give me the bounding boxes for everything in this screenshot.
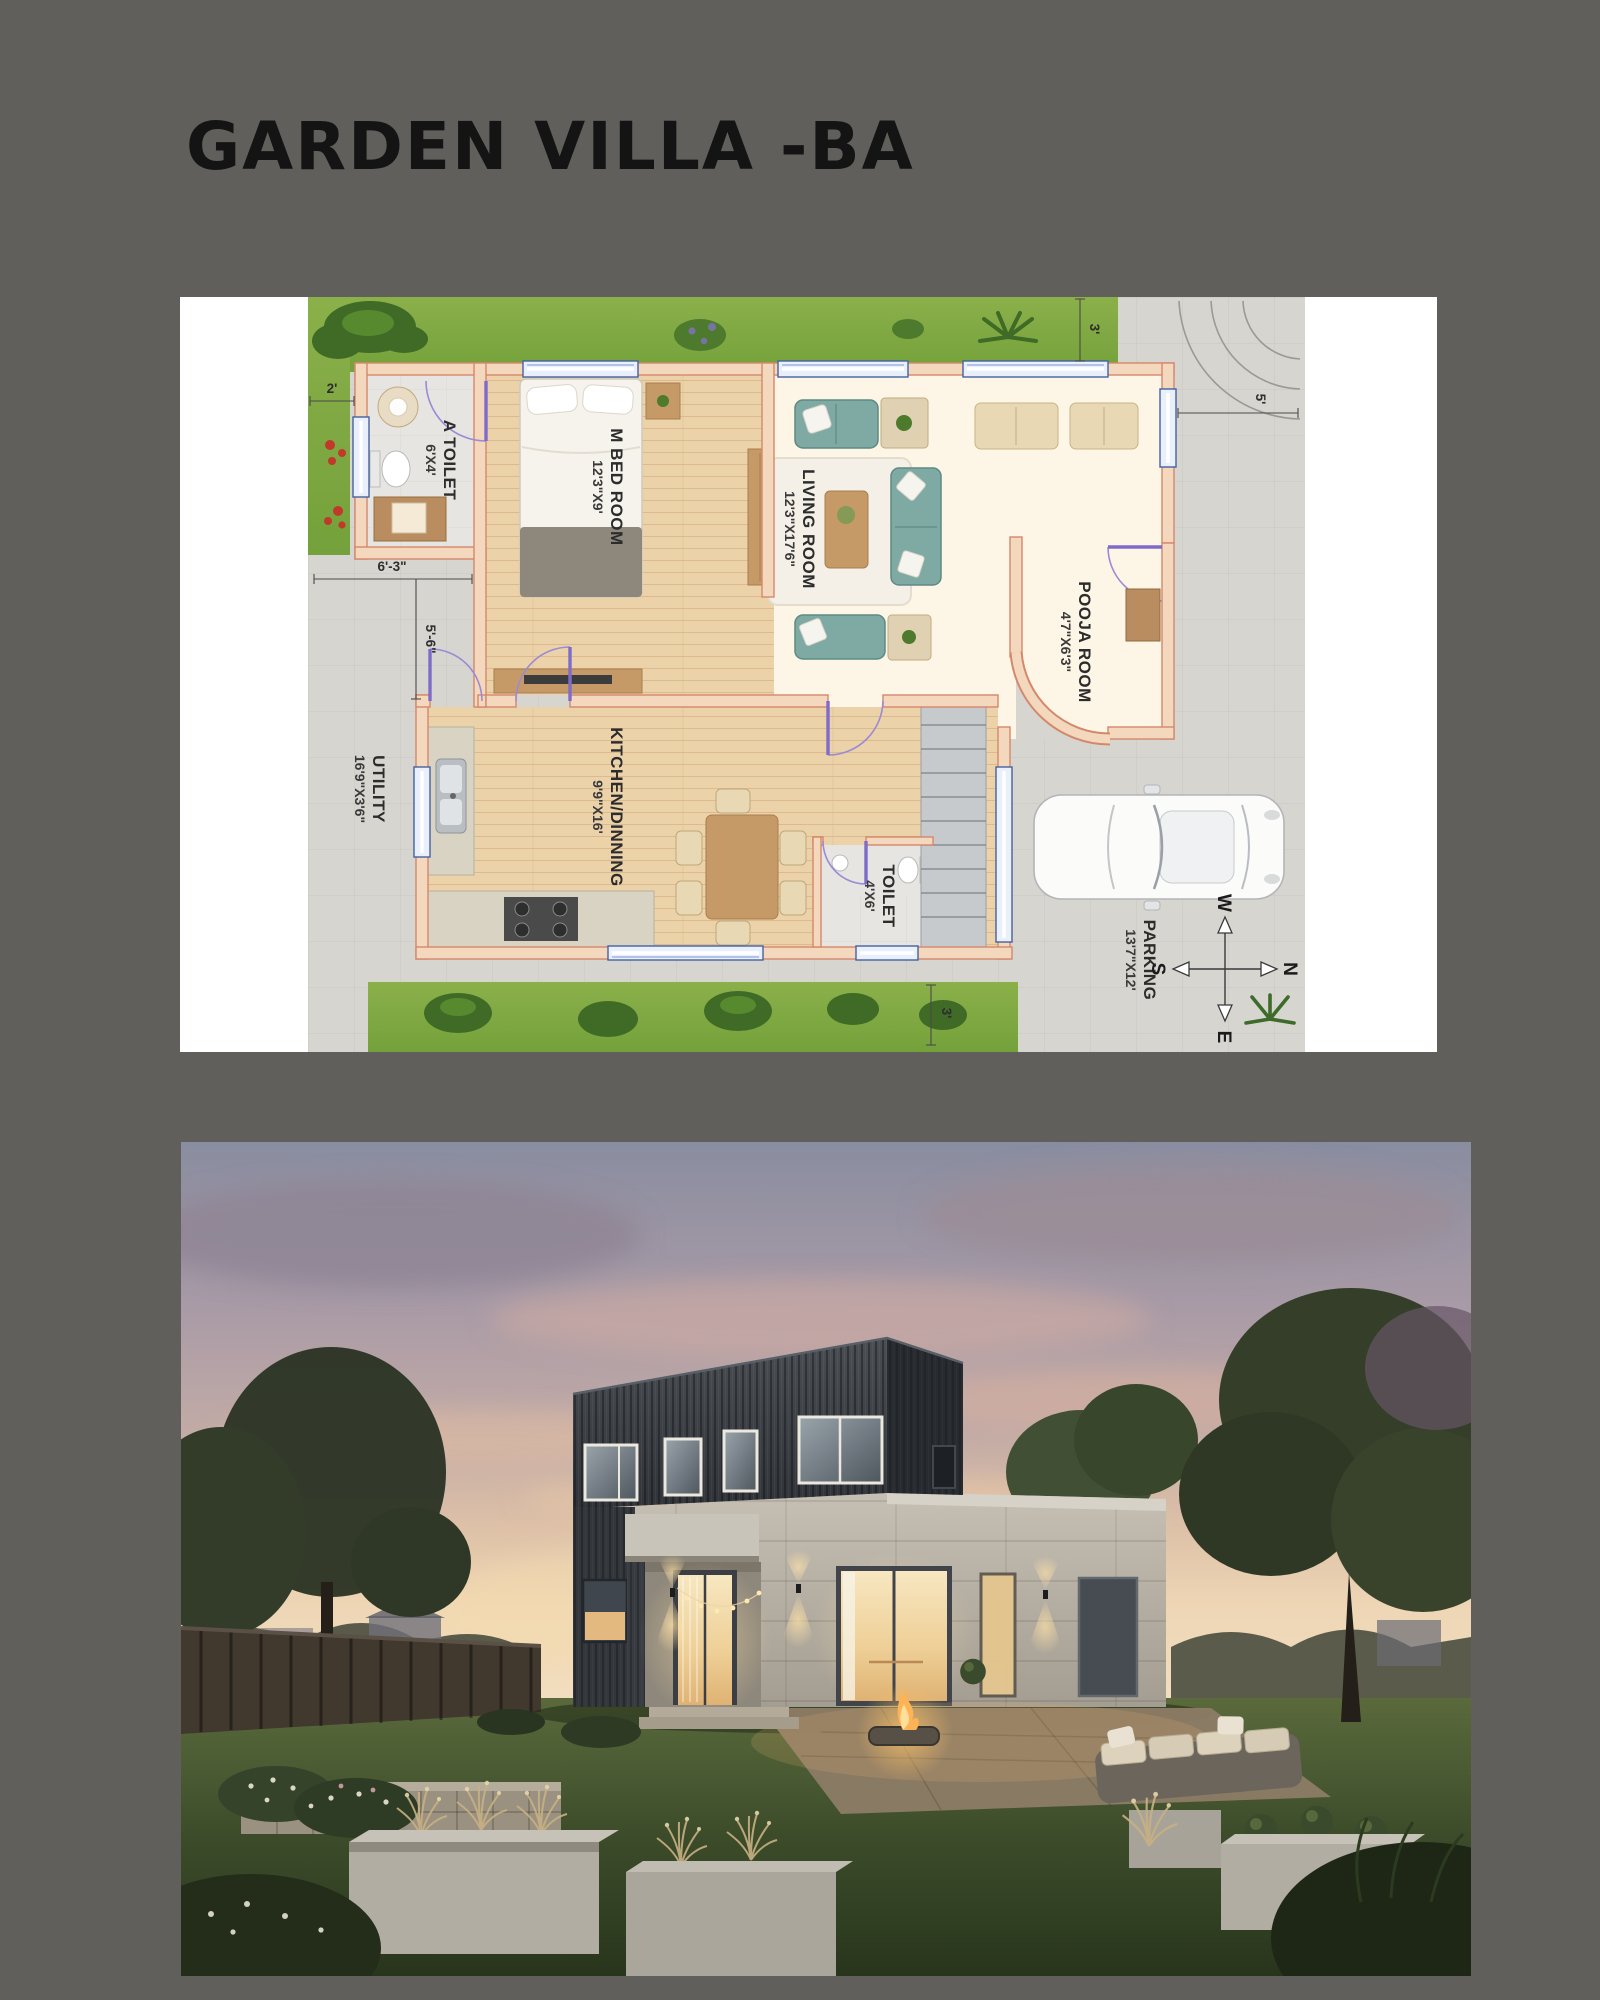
- pillow: [526, 384, 578, 415]
- coffee-table: [825, 491, 868, 568]
- house-render-photo: [181, 1142, 1471, 1976]
- dim-6-3: 6'-3": [377, 559, 406, 574]
- dim-5-6: 5'-6": [423, 624, 438, 653]
- wing-window-lit: [981, 1574, 1015, 1696]
- room-label-bedroom: M BED ROOM: [607, 428, 626, 545]
- fire-pit: [857, 1684, 953, 1780]
- floor-plan-card: A TOILET 6'X4' M BED ROOM 12'3"X9' LIVIN…: [180, 297, 1437, 1052]
- room-size-a-toilet: 6'X4': [423, 444, 439, 476]
- room-size-kitchen: 9'9"X16': [590, 780, 606, 834]
- room-size-living: 12'3"X17'6": [782, 491, 798, 567]
- compass-north: N: [1279, 962, 1300, 976]
- room-label-toilet2: TOILET: [879, 864, 898, 927]
- room-size-toilet2: 4'X6': [862, 880, 878, 912]
- room-size-pooja: 4'7"X6'3": [1058, 612, 1074, 672]
- pillow: [582, 384, 634, 414]
- room-label-a-toilet: A TOILET: [440, 420, 459, 501]
- side-window: [583, 1580, 627, 1642]
- stove: [504, 897, 578, 941]
- room-size-utility: 16'9"X3'6": [352, 755, 368, 823]
- compass-west: W: [1213, 894, 1234, 912]
- room-label-kitchen: KITCHEN/DINNING: [607, 727, 626, 887]
- dim-2ft: 2': [327, 381, 338, 396]
- car: [1034, 785, 1284, 910]
- room-size-bedroom: 12'3"X9': [590, 460, 606, 514]
- compass-south: S: [1147, 963, 1168, 976]
- floor-plan-image: A TOILET 6'X4' M BED ROOM 12'3"X9' LIVIN…: [308, 297, 1305, 1052]
- pooja-shelf: [1126, 589, 1160, 641]
- room-label-parking: PARKING: [1140, 920, 1159, 1001]
- room-label-living: LIVING ROOM: [799, 469, 818, 589]
- dim-5ft: 5': [1253, 394, 1268, 405]
- page-title: GARDEN VILLA -BA: [186, 108, 915, 185]
- slider-window: [836, 1566, 952, 1706]
- room-label-pooja: POOJA ROOM: [1075, 581, 1094, 703]
- room-label-utility: UTILITY: [369, 755, 388, 823]
- page: { "page": { "background_color": "#615f5c…: [0, 0, 1600, 2000]
- dim-3ft-bottom: 3': [939, 1008, 954, 1019]
- canopy: [625, 1514, 759, 1562]
- wing-window-dark: [1079, 1578, 1137, 1696]
- compass-east: E: [1213, 1031, 1234, 1044]
- staircase: [921, 701, 986, 947]
- dim-3ft-top: 3': [1087, 324, 1102, 335]
- room-size-parking: 13'7"X12': [1123, 929, 1139, 991]
